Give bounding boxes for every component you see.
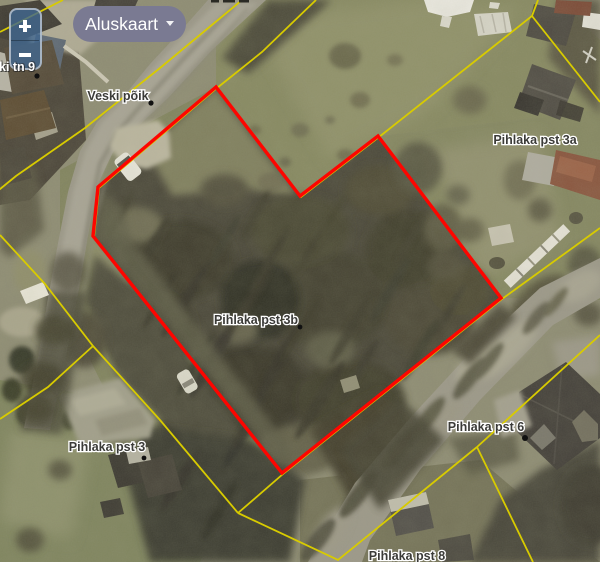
svg-text:Pihlaka pst 3: Pihlaka pst 3 bbox=[69, 440, 145, 454]
svg-text:Pihlaka pst 3a: Pihlaka pst 3a bbox=[493, 133, 577, 147]
svg-text:Veski põik: Veski põik bbox=[87, 89, 148, 103]
svg-text:Pihlaka pst 6: Pihlaka pst 6 bbox=[448, 420, 524, 434]
svg-text:Pihlaka pst 8: Pihlaka pst 8 bbox=[369, 549, 445, 562]
svg-text:Pihlaka pst 3b: Pihlaka pst 3b bbox=[214, 313, 298, 327]
